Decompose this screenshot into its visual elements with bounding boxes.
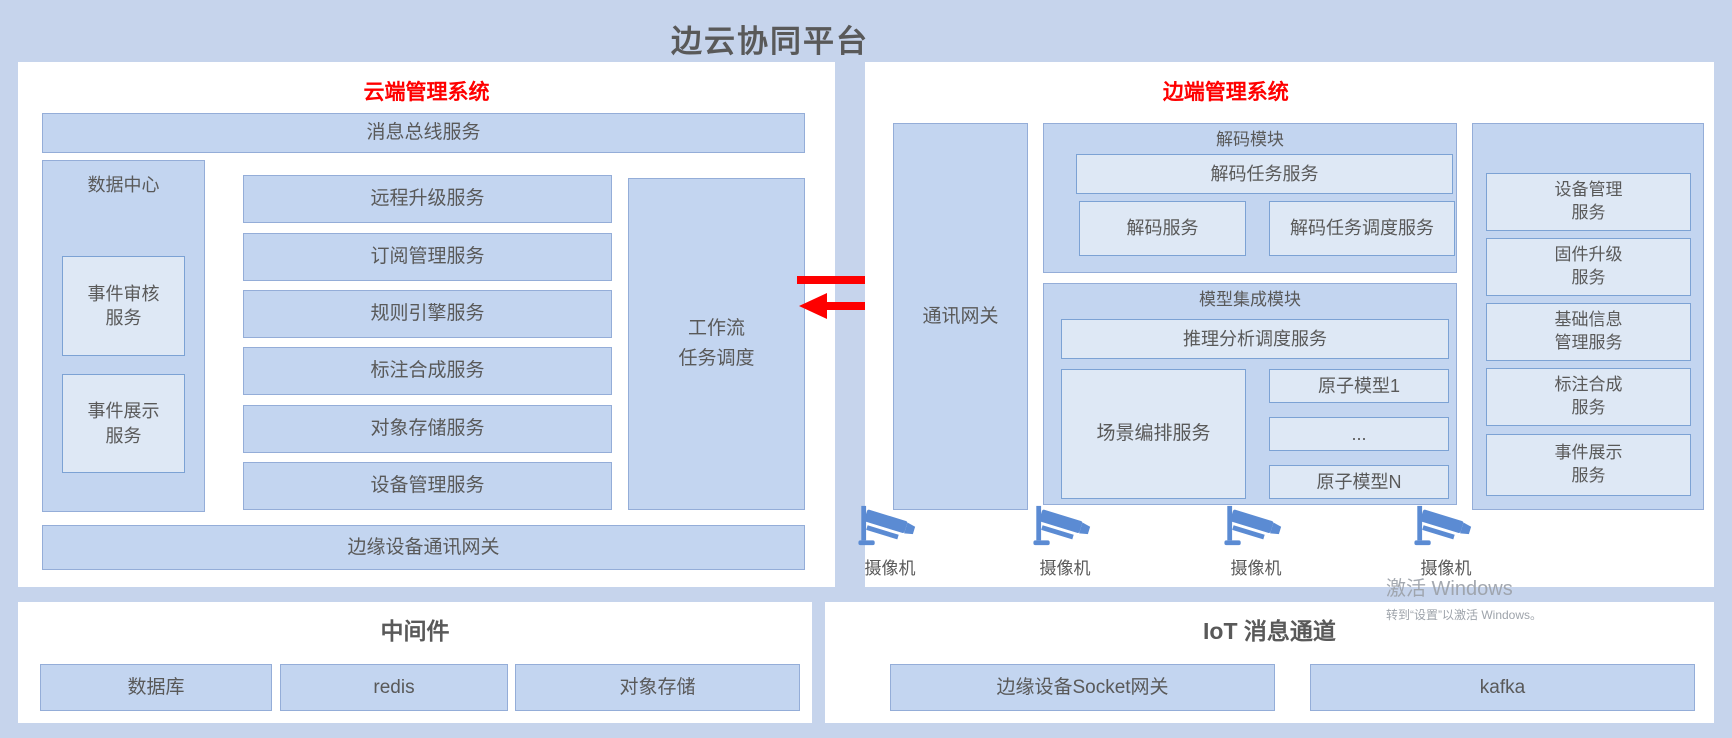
redis-box: redis	[280, 664, 508, 711]
windows-watermark: 激活 Windows 转到“设置”以激活 Windows。	[1386, 572, 1542, 623]
camera-1: 摄像机	[842, 504, 938, 579]
decode-module-title: 解码模块	[1044, 129, 1456, 152]
slide-canvas: 边云协同平台 云端管理系统 消息总线服务 数据中心 事件审核 服务 事件展示 服…	[0, 0, 1732, 738]
device-mgmt-service-box: 设备管理服务	[243, 462, 612, 510]
data-center-box: 数据中心 事件审核 服务 事件展示 服务	[42, 160, 205, 512]
edge-device-mgmt-service-box: 设备管理 服务	[1486, 173, 1691, 231]
atomic-model-1-box: 原子模型1	[1269, 369, 1449, 403]
camera-4: 摄像机	[1398, 504, 1494, 579]
data-center-title: 数据中心	[43, 173, 204, 197]
camera-icon	[858, 504, 922, 548]
decode-module-box: 解码模块 解码任务服务 解码服务 解码任务调度服务	[1043, 123, 1457, 273]
atomic-model-ellipsis-box: ...	[1269, 417, 1449, 451]
event-display-service-box: 事件展示 服务	[62, 374, 185, 473]
edge-annotation-compose-service-box: 标注合成 服务	[1486, 368, 1691, 426]
decode-task-scheduler-box: 解码任务调度服务	[1269, 201, 1455, 256]
atomic-model-n-box: 原子模型N	[1269, 465, 1449, 499]
database-box: 数据库	[40, 664, 272, 711]
cloud-panel-title: 云端管理系统	[18, 76, 835, 106]
inference-scheduler-box: 推理分析调度服务	[1061, 319, 1449, 359]
camera-label: 摄像机	[842, 554, 938, 579]
message-bus-service-box: 消息总线服务	[42, 113, 805, 153]
camera-icon	[1033, 504, 1097, 548]
event-audit-service-box: 事件审核 服务	[62, 256, 185, 356]
remote-upgrade-service-box: 远程升级服务	[243, 175, 612, 223]
page-title: 边云协同平台	[0, 16, 1540, 61]
cloud-panel: 云端管理系统 消息总线服务 数据中心 事件审核 服务 事件展示 服务 远程升级服…	[18, 62, 835, 587]
camera-icon	[1414, 504, 1478, 548]
socket-gateway-box: 边缘设备Socket网关	[890, 664, 1275, 711]
edge-panel-title: 边端管理系统	[865, 76, 1587, 106]
middleware-title: 中间件	[18, 612, 812, 646]
object-storage-box: 对象存储	[515, 664, 800, 711]
scene-orchestration-box: 场景编排服务	[1061, 369, 1246, 499]
watermark-line2: 转到“设置”以激活 Windows。	[1386, 606, 1542, 623]
iot-title: IoT 消息通道	[825, 612, 1714, 646]
edge-event-display-service-box: 事件展示 服务	[1486, 434, 1691, 496]
camera-label: 摄像机	[1208, 554, 1304, 579]
kafka-box: kafka	[1310, 664, 1695, 711]
device-services-column: 设备管理 服务 固件升级 服务 基础信息 管理服务 标注合成 服务 事件展示 服…	[1472, 123, 1704, 510]
basic-info-mgmt-service-box: 基础信息 管理服务	[1486, 303, 1691, 361]
firmware-upgrade-service-box: 固件升级 服务	[1486, 238, 1691, 296]
model-module-title: 模型集成模块	[1044, 289, 1456, 312]
iot-panel: IoT 消息通道 边缘设备Socket网关 kafka	[825, 602, 1714, 723]
camera-2: 摄像机	[1017, 504, 1113, 579]
decode-task-service-box: 解码任务服务	[1076, 154, 1453, 194]
comm-gateway-box: 通讯网关	[893, 123, 1028, 510]
rule-engine-service-box: 规则引擎服务	[243, 290, 612, 338]
edge-device-comm-gateway-box: 边缘设备通讯网关	[42, 525, 805, 570]
annotation-compose-service-box: 标注合成服务	[243, 347, 612, 395]
camera-icon	[1224, 504, 1288, 548]
middleware-panel: 中间件 数据库 redis 对象存储	[18, 602, 812, 723]
edge-panel: 边端管理系统 通讯网关 解码模块 解码任务服务 解码服务 解码任务调度服务 模型…	[865, 62, 1714, 587]
decode-service-box: 解码服务	[1079, 201, 1246, 256]
subscription-mgmt-service-box: 订阅管理服务	[243, 233, 612, 281]
camera-label: 摄像机	[1017, 554, 1113, 579]
camera-3: 摄像机	[1208, 504, 1304, 579]
model-integration-module-box: 模型集成模块 推理分析调度服务 场景编排服务 原子模型1 ... 原子模型N	[1043, 283, 1457, 505]
workflow-task-scheduler-box: 工作流 任务调度	[628, 178, 805, 510]
object-storage-service-box: 对象存储服务	[243, 405, 612, 453]
watermark-line1: 激活 Windows	[1386, 572, 1542, 601]
